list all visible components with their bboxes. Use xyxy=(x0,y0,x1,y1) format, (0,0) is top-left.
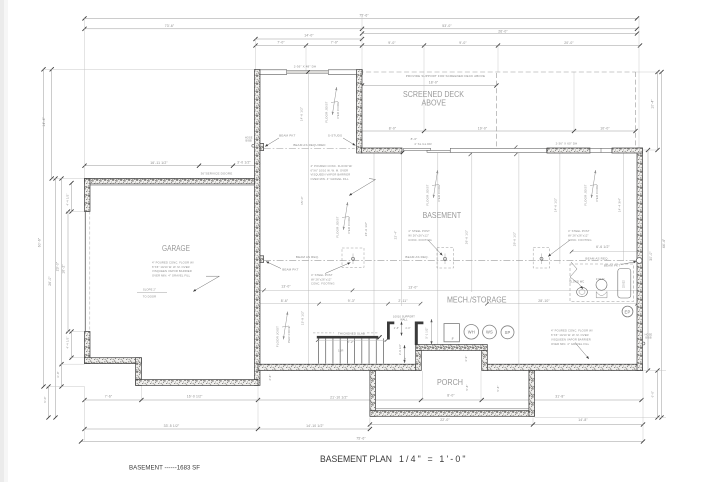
svg-text:4' SL GL DR: 4' SL GL DR xyxy=(414,142,432,146)
svg-text:OVER MIN. 4" GRAVEL FILL: OVER MIN. 4" GRAVEL FILL xyxy=(551,342,590,346)
svg-text:BIBB: BIBB xyxy=(246,139,252,142)
svg-text:16'-0 1/2": 16'-0 1/2" xyxy=(187,395,203,399)
svg-text:PER CODE: PER CODE xyxy=(437,185,441,202)
svg-text:29'-6 1/2": 29'-6 1/2" xyxy=(513,232,517,247)
svg-text:20'-0": 20'-0" xyxy=(564,41,574,45)
svg-text:6'-0": 6'-0" xyxy=(651,391,655,398)
svg-text:BASEMENT PLAN: BASEMENT PLAN xyxy=(320,454,392,464)
svg-text:W/ 26"x26"x12": W/ 26"x26"x12" xyxy=(408,234,429,238)
svg-text:BEAM PKT: BEAM PKT xyxy=(279,133,295,137)
svg-text:28'-10": 28'-10" xyxy=(538,299,550,303)
svg-text:BEAM AS REQ.: BEAM AS REQ. xyxy=(585,256,608,260)
svg-text:14'-4": 14'-4" xyxy=(42,116,46,126)
svg-text:6"X6" 10/10 W. W. M. OVER: 6"X6" 10/10 W. W. M. OVER xyxy=(551,333,589,337)
svg-text:PER CODE: PER CODE xyxy=(287,326,291,343)
svg-text:33'-5 1/2": 33'-5 1/2" xyxy=(164,424,180,428)
svg-text:44'-4": 44'-4" xyxy=(662,238,666,248)
svg-text:BEAM AS REQUIRED: BEAM AS REQUIRED xyxy=(293,143,326,147)
svg-text:4" STEEL POST: 4" STEEL POST xyxy=(568,229,590,233)
svg-text:5'-8": 5'-8" xyxy=(496,385,500,391)
svg-text:FLOOR JOIST: FLOOR JOIST xyxy=(336,216,340,237)
svg-text:14'-0": 14'-0" xyxy=(304,34,314,38)
svg-text:1/4" = 1'-0": 1/4" = 1'-0" xyxy=(399,454,468,464)
svg-text:6"X6" 10/10 W. W. M. OVER: 6"X6" 10/10 W. W. M. OVER xyxy=(152,265,190,269)
svg-text:16'-2": 16'-2" xyxy=(62,264,66,274)
svg-text:4'-4 1/2": 4'-4 1/2" xyxy=(66,193,70,205)
svg-text:26'-6 1/2": 26'-6 1/2" xyxy=(465,230,469,245)
svg-text:WALL: WALL xyxy=(400,318,408,321)
svg-text:PROVIDE SUPPORT FOR SCREENED D: PROVIDE SUPPORT FOR SCREENED DECK ABOVE xyxy=(406,74,485,78)
svg-text:SLOPE 2": SLOPE 2" xyxy=(143,288,156,292)
svg-text:24'-6 1/2": 24'-6 1/2" xyxy=(364,222,368,237)
svg-text:4'-0": 4'-0" xyxy=(405,327,411,330)
svg-text:FLOOR JOIST: FLOOR JOIST xyxy=(276,326,280,347)
svg-text:2-36" X 48" DH: 2-36" X 48" DH xyxy=(294,64,316,68)
svg-text:GARAGE: GARAGE xyxy=(162,243,190,253)
svg-text:6"X6" 10/10 W. W. M. OVER: 6"X6" 10/10 W. W. M. OVER xyxy=(311,168,349,172)
svg-text:5'-8": 5'-8" xyxy=(465,384,469,390)
svg-text:10'-4": 10'-4" xyxy=(651,99,655,109)
svg-text:14'-8": 14'-8" xyxy=(578,418,588,422)
svg-text:4" POURED CONC. FLOOR W/: 4" POURED CONC. FLOOR W/ xyxy=(152,260,194,264)
svg-text:4'-4 1/2": 4'-4 1/2" xyxy=(66,336,70,348)
svg-text:3'-0 1/2": 3'-0 1/2" xyxy=(237,161,251,165)
svg-text:BEAM AS REQ.: BEAM AS REQ. xyxy=(296,255,319,259)
svg-text:73'-6": 73'-6" xyxy=(165,24,175,28)
svg-text:75'-6": 75'-6" xyxy=(356,437,366,441)
svg-text:OVER MIN. 4" GRAVEL FILL: OVER MIN. 4" GRAVEL FILL xyxy=(311,177,350,181)
svg-text:26'-0": 26'-0" xyxy=(498,29,508,33)
svg-text:13'-0": 13'-0" xyxy=(408,285,418,289)
svg-text:3'-9 1/2": 3'-9 1/2" xyxy=(398,344,402,355)
svg-text:22'-0": 22'-0" xyxy=(440,418,450,422)
svg-text:9'-3": 9'-3" xyxy=(348,299,356,303)
svg-text:36"SERVICE DOORE: 36"SERVICE DOORE xyxy=(201,171,233,175)
svg-text:BEAM AS REQ.: BEAM AS REQ. xyxy=(405,255,428,259)
svg-text:9'-0": 9'-0" xyxy=(388,41,396,45)
svg-text:2'-11": 2'-11" xyxy=(398,299,408,303)
svg-text:14'-10 1/2": 14'-10 1/2" xyxy=(306,424,324,428)
svg-text:EP: EP xyxy=(625,309,631,314)
svg-text:ABOVE: ABOVE xyxy=(422,99,447,108)
svg-text:W/ 26"x26"x12": W/ 26"x26"x12" xyxy=(311,277,332,281)
svg-text:BEAM PKT: BEAM PKT xyxy=(282,267,298,271)
svg-text:18'-0": 18'-0" xyxy=(429,81,439,85)
svg-text:8'-0": 8'-0" xyxy=(411,137,418,141)
svg-text:THICKENED SLAB: THICKENED SLAB xyxy=(338,332,365,336)
svg-text:CONC. FOOTING: CONC. FOOTING xyxy=(311,282,335,286)
svg-text:31'-8": 31'-8" xyxy=(555,395,565,399)
svg-text:PORCH: PORCH xyxy=(437,377,463,387)
svg-text:75'-6": 75'-6" xyxy=(359,14,369,18)
svg-text:S-STUDS: S-STUDS xyxy=(328,133,342,137)
svg-text:4" POURED CONC. FLOOR W/: 4" POURED CONC. FLOOR W/ xyxy=(551,329,593,333)
svg-text:PER CODE: PER CODE xyxy=(336,102,340,119)
svg-text:PER CODE: PER CODE xyxy=(595,185,599,202)
svg-text:7'-0": 7'-0" xyxy=(331,41,339,45)
svg-text:13'-8 1/2": 13'-8 1/2" xyxy=(301,311,305,326)
svg-text:5'-1 1/2": 5'-1 1/2" xyxy=(425,327,429,338)
svg-text:14'-4 3/4": 14'-4 3/4" xyxy=(617,198,621,213)
svg-text:8'-6": 8'-6" xyxy=(281,299,289,303)
svg-text:32X32: 32X32 xyxy=(622,280,625,288)
svg-text:SP: SP xyxy=(505,330,511,335)
svg-text:2'-8": 2'-8" xyxy=(394,327,400,330)
svg-text:23'-0": 23'-0" xyxy=(56,261,60,271)
svg-text:2-36" X 60" DH: 2-36" X 60" DH xyxy=(556,142,578,146)
svg-text:7'-6": 7'-6" xyxy=(105,395,113,399)
svg-text:4" POURED CONC. FLOOR W/: 4" POURED CONC. FLOOR W/ xyxy=(311,164,353,168)
svg-text:7'-2": 7'-2" xyxy=(403,356,407,362)
svg-text:FLOOR JOIST: FLOOR JOIST xyxy=(584,184,588,205)
svg-text:60'-6": 60'-6" xyxy=(38,237,42,247)
svg-text:WS: WS xyxy=(486,330,493,335)
svg-text:15'-0": 15'-0" xyxy=(300,196,304,205)
svg-text:7'-0": 7'-0" xyxy=(277,41,285,45)
svg-text:BEAM PKT: BEAM PKT xyxy=(604,264,620,268)
svg-text:9'-0": 9'-0" xyxy=(459,41,467,45)
svg-text:8'-0": 8'-0" xyxy=(389,126,397,130)
svg-text:BASEMENT: BASEMENT xyxy=(423,210,462,220)
svg-text:6'-0": 6'-0" xyxy=(43,396,47,403)
svg-text:FLOOR JOIST: FLOOR JOIST xyxy=(426,184,430,205)
svg-text:VISQUEEN VAPOR BARRIER: VISQUEEN VAPOR BARRIER xyxy=(152,269,192,273)
svg-text:8'-2": 8'-2" xyxy=(347,340,354,344)
svg-text:3'-0": 3'-0" xyxy=(56,371,60,378)
svg-text:10'-0": 10'-0" xyxy=(600,126,610,130)
svg-text:MECH./STORAGE: MECH./STORAGE xyxy=(447,295,507,305)
svg-text:8'-0": 8'-0" xyxy=(447,394,455,398)
svg-text:14'-6 1/2": 14'-6 1/2" xyxy=(299,107,303,122)
svg-text:WH: WH xyxy=(468,330,475,335)
svg-text:BIBB: BIBB xyxy=(645,336,651,339)
svg-text:6'-6 1/2": 6'-6 1/2" xyxy=(596,245,610,249)
svg-text:19'-0": 19'-0" xyxy=(478,126,488,130)
svg-text:53'-0": 53'-0" xyxy=(442,24,452,28)
svg-text:W/ 26"x26"x12": W/ 26"x26"x12" xyxy=(568,234,589,238)
svg-text:2'-6": 2'-6" xyxy=(268,374,272,380)
svg-text:4" STEEL POST: 4" STEEL POST xyxy=(311,273,333,277)
svg-text:21'-10 1/2": 21'-10 1/2" xyxy=(330,396,348,400)
svg-text:PER CODE: PER CODE xyxy=(347,217,351,234)
svg-text:16R: 16R xyxy=(338,349,344,353)
svg-text:VISQUEEN VAPOR BARRIER: VISQUEEN VAPOR BARRIER xyxy=(551,338,591,342)
svg-text:13'-0": 13'-0" xyxy=(281,284,291,288)
svg-text:TO DOOR: TO DOOR xyxy=(143,295,157,299)
svg-text:VISQUEEN VAPOR BARRIER: VISQUEEN VAPOR BARRIER xyxy=(311,173,351,177)
svg-text:CONC. FOOTING: CONC. FOOTING xyxy=(568,238,592,242)
svg-text:16'-11 1/2": 16'-11 1/2" xyxy=(150,161,168,165)
svg-text:22'-4": 22'-4" xyxy=(394,231,398,240)
svg-text:30'-0": 30'-0" xyxy=(649,251,653,261)
svg-text:4" STEEL POST: 4" STEEL POST xyxy=(408,229,430,233)
svg-text:FLOOR JOIST: FLOOR JOIST xyxy=(325,101,329,122)
svg-text:26'-0": 26'-0" xyxy=(48,276,52,286)
svg-text:OVER MIN. 4" GRAVEL FILL: OVER MIN. 4" GRAVEL FILL xyxy=(152,274,191,278)
svg-text:3'-9": 3'-9" xyxy=(464,355,468,361)
svg-text:14'-6 1/2": 14'-6 1/2" xyxy=(553,198,557,213)
svg-text:BASEMENT ------1683 SF: BASEMENT ------1683 SF xyxy=(129,466,200,472)
